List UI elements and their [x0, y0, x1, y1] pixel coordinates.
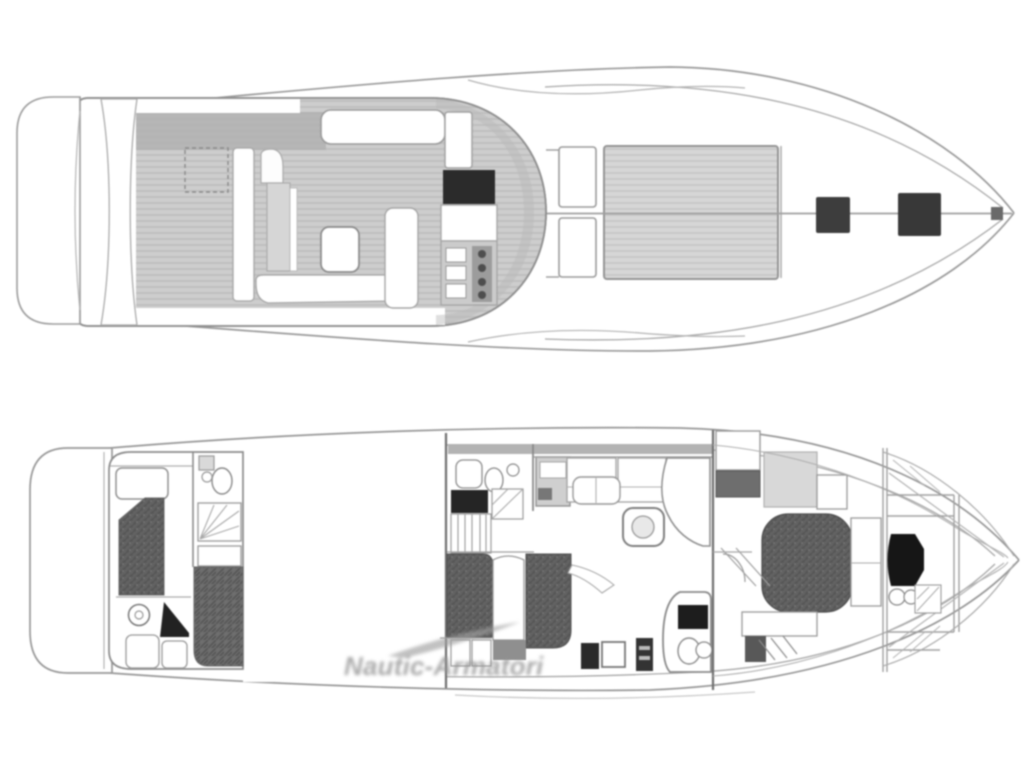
svg-text:Nautic-Armatori: Nautic-Armatori	[344, 651, 544, 681]
